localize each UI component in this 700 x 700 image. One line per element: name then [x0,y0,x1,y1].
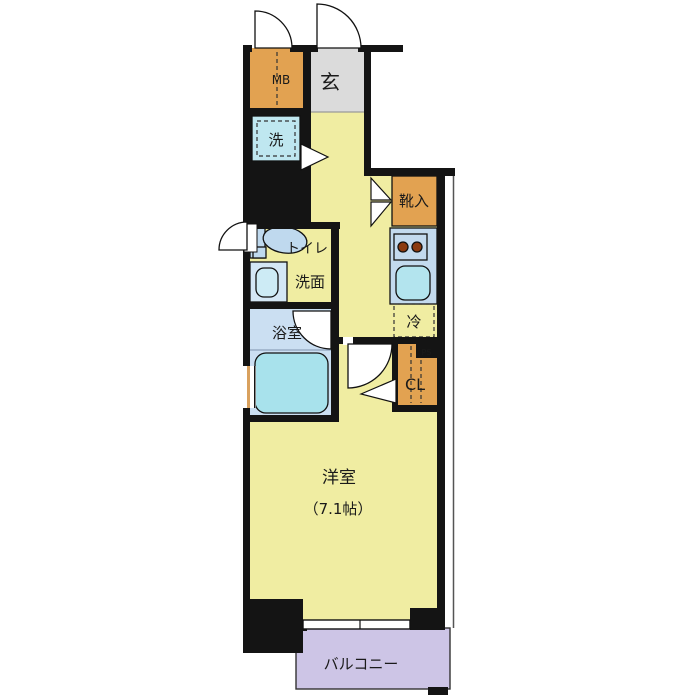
western-room-label: 洋室 [322,468,356,488]
washbasin [256,268,278,297]
pipe-space-label: PS [422,348,432,357]
washroom-label: 洗面 [295,273,325,291]
closet-label: CL [405,375,425,394]
balcony-label: バルコニー [324,655,399,673]
floor-plan: MB 玄 洗 靴入 トイレ 洗面 浴室 冷 CL PS 洋室 （7.1帖） バル… [0,0,700,700]
refrigerator-label: 冷 [406,313,421,331]
meter-box-label: MB [272,73,291,87]
western-room-size-label: （7.1帖） [304,500,373,518]
shoe-storage-label: 靴入 [399,192,429,210]
entrance-door-arc [317,4,361,48]
stove-burner-right [412,242,422,252]
stove-burner-left [398,242,408,252]
floor-plan-page: MB 玄 洗 靴入 トイレ 洗面 浴室 冷 CL PS 洋室 （7.1帖） バル… [0,0,700,700]
meter-box-door-arc [255,11,292,48]
balcony-corner-right [428,687,448,695]
entrance-label: 玄 [320,70,340,94]
kitchen-sink [396,266,430,300]
toilet-door-arc [219,222,247,250]
bathroom-label: 浴室 [272,324,302,342]
washer-label: 洗 [268,131,283,149]
bathroom-window [243,366,256,408]
balcony-window [303,620,410,629]
toilet-label: トイレ [286,241,328,257]
bathtub [255,353,328,413]
